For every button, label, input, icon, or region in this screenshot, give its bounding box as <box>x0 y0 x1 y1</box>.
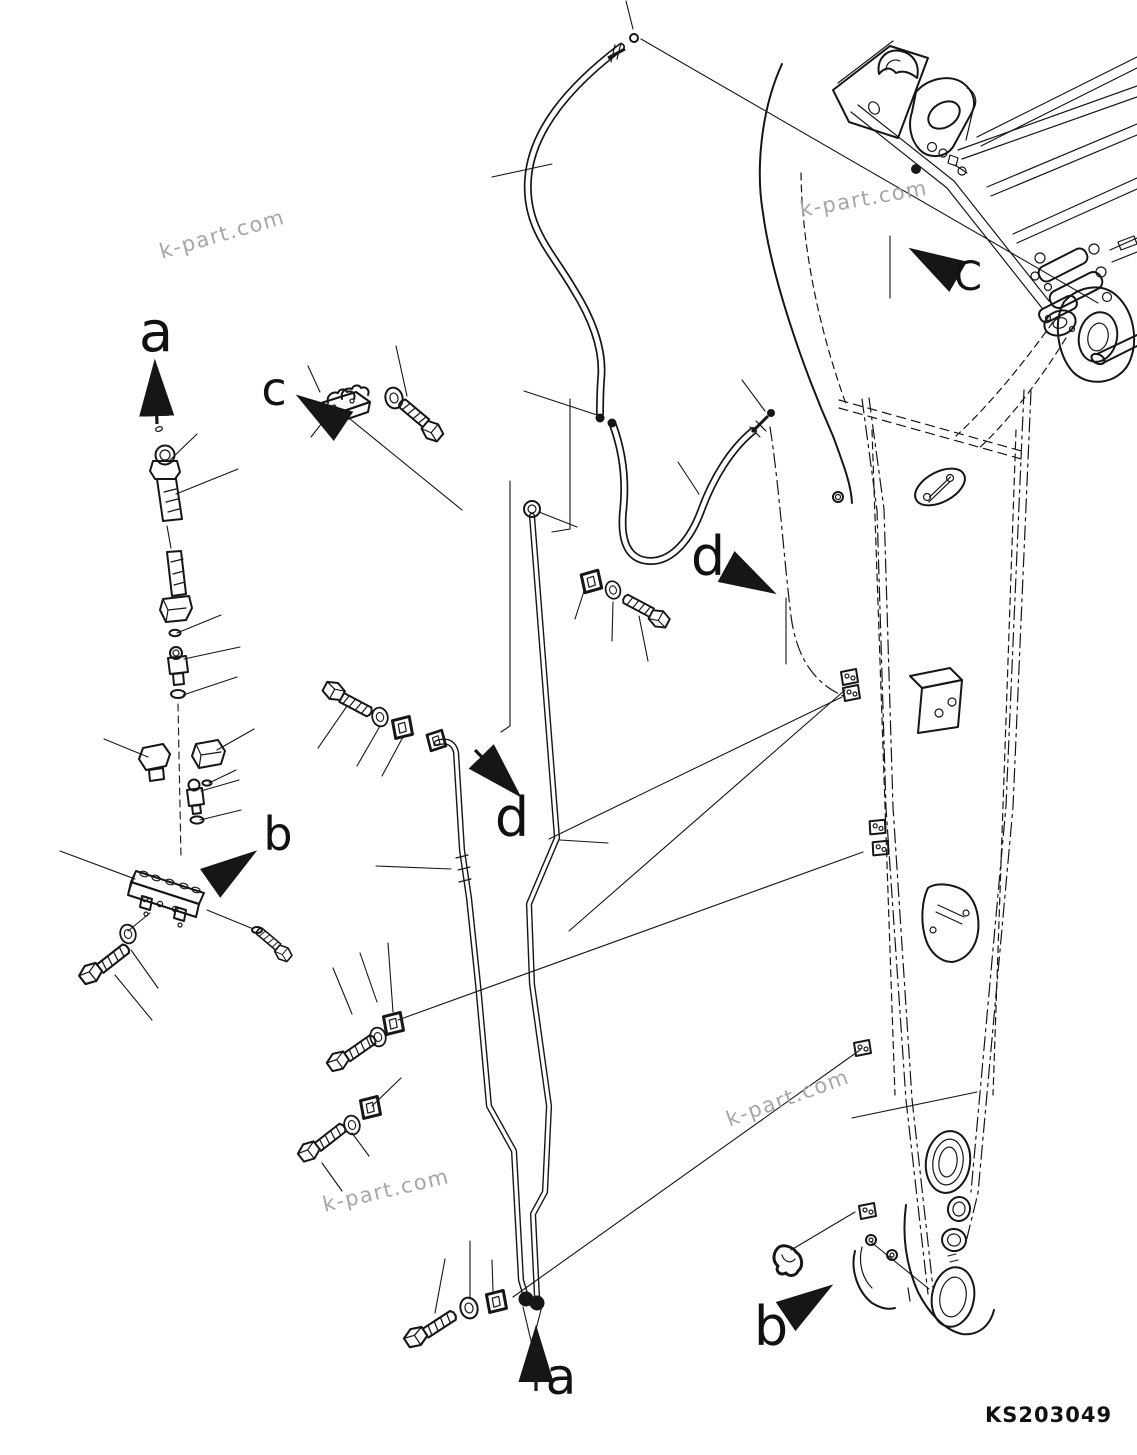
hose-fitting-stack <box>139 426 225 858</box>
diagram-canvas <box>0 0 1137 1455</box>
long-steel-pipe-right <box>524 501 557 1311</box>
arrow-C-machine <box>914 251 950 272</box>
view-label-b-manifold: b <box>263 811 292 857</box>
arm-interior-details <box>833 461 994 1334</box>
view-label-a-bottom: a <box>546 1352 577 1402</box>
arrow-a-top <box>155 365 157 424</box>
arrow-d-upper <box>727 567 771 591</box>
arrow-b-manifold <box>215 854 252 880</box>
upper-s-hose <box>528 34 638 423</box>
view-label-C-machine: C <box>954 257 982 297</box>
excavator-arm-outline <box>760 64 1031 1294</box>
view-label-a-top: a <box>139 305 173 361</box>
leader-lines <box>60 1 1098 1313</box>
drawing-number: KS203049 <box>985 1403 1112 1427</box>
parts-diagram-page: a c C d d b b a k-part.com k-part.com k-… <box>0 0 1137 1455</box>
view-label-c-upper: c <box>261 366 286 412</box>
view-label-d-lower: d <box>495 791 529 845</box>
view-label-b-arm: b <box>754 1300 788 1354</box>
boom-linkage-assembly <box>833 41 1137 450</box>
double-pipe-clamp-block <box>318 385 370 425</box>
arrow-b-arm <box>788 1288 828 1315</box>
view-label-d-upper: d <box>691 530 725 584</box>
manifold-block <box>128 870 262 933</box>
pipe-end-boundary <box>523 1306 542 1345</box>
arrow-c-upper <box>301 398 340 424</box>
